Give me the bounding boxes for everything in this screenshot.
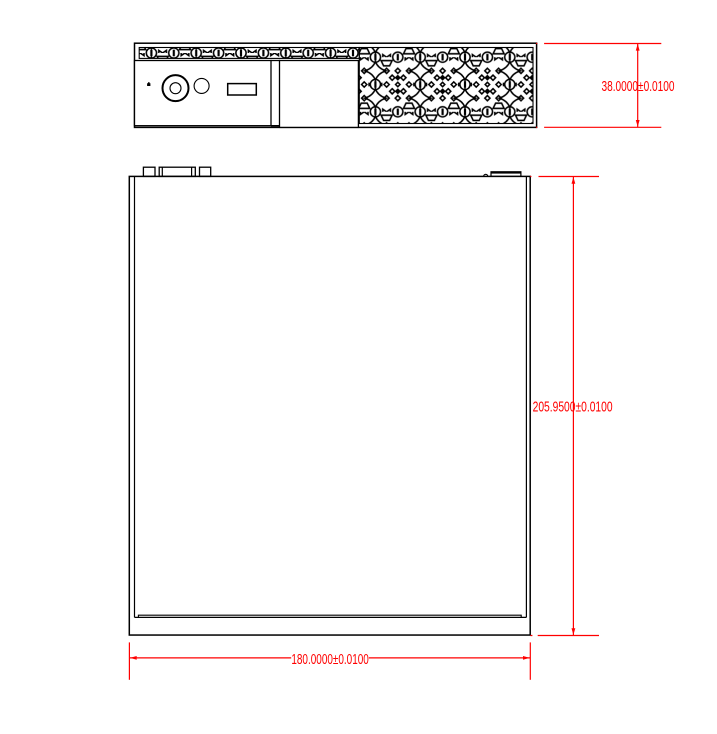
svg-text:205.9500±0.0100: 205.9500±0.0100 <box>533 400 613 416</box>
svg-text:38.0000±0.0100: 38.0000±0.0100 <box>602 79 675 95</box>
svg-text:180.0000±0.0100: 180.0000±0.0100 <box>291 652 369 668</box>
